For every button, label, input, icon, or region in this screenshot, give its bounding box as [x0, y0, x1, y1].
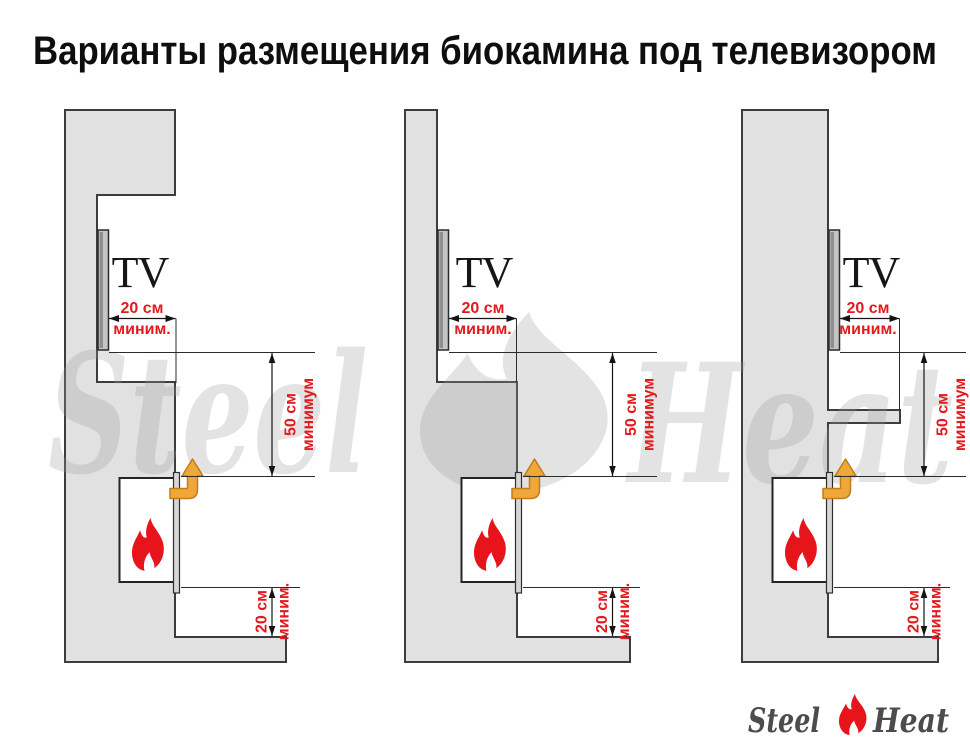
dimension-value: 20 см — [847, 300, 890, 317]
diagram-page: Steel Heat TV 20 см миним. — [0, 0, 970, 749]
dimension-qualifier: миним. — [928, 583, 945, 640]
dimension-qualifier: минимум — [641, 378, 658, 451]
dimension-qualifier: миним. — [113, 321, 170, 338]
dimension-qualifier: минимум — [300, 378, 317, 451]
tv-label: TV — [456, 248, 514, 297]
page-title: Варианты размещения биокамина под телеви… — [33, 29, 937, 73]
fireplace-floor-dimension: 20 см миним. — [181, 583, 300, 640]
dimension-value: 50 см — [623, 393, 640, 436]
brand-logo: Steel Heat — [748, 694, 949, 741]
dimension-value: 20 см — [594, 590, 611, 633]
dimension-qualifier: миним. — [454, 321, 511, 338]
tv-panel-edge — [440, 232, 444, 348]
dimension-value: 20 см — [906, 590, 923, 633]
dimension-value: 20 см — [254, 590, 271, 633]
tv-label: TV — [112, 248, 170, 297]
diagram-canvas: Steel Heat TV 20 см миним. — [0, 0, 970, 749]
dimension-qualifier: миним. — [616, 583, 633, 640]
watermark-steel-text: Steel — [48, 317, 368, 511]
logo-steel-text: Steel — [748, 701, 820, 741]
tv-label: TV — [843, 248, 901, 297]
dimension-value: 20 см — [462, 300, 505, 317]
fireplace-floor-dimension: 20 см миним. — [834, 583, 950, 640]
tv-panel-edge — [100, 232, 104, 348]
dimension-qualifier: миним. — [276, 583, 293, 640]
dimension-qualifier: миним. — [839, 321, 896, 338]
dimension-qualifier: минимум — [952, 378, 969, 451]
fireplace-floor-dimension: 20 см миним. — [523, 583, 640, 640]
dimension-value: 50 см — [935, 393, 952, 436]
logo-heat-text: Heat — [872, 701, 949, 741]
dimension-value: 50 см — [283, 393, 300, 436]
dimension-value: 20 см — [121, 300, 164, 317]
tv-panel-edge — [831, 232, 835, 348]
